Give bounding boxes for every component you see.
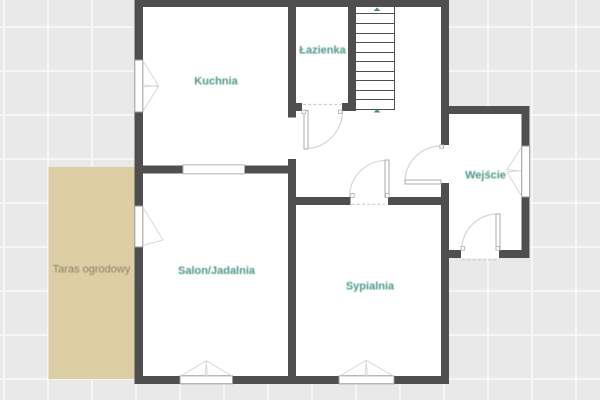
svg-text:Wejście: Wejście [465,170,506,182]
svg-text:Łazienka: Łazienka [299,45,346,57]
svg-text:Sypialnia: Sypialnia [346,281,395,293]
svg-text:Taras ogrodowy: Taras ogrodowy [53,264,131,276]
svg-text:Kuchnia: Kuchnia [194,76,238,88]
svg-text:Salon/Jadalnia: Salon/Jadalnia [178,265,256,277]
